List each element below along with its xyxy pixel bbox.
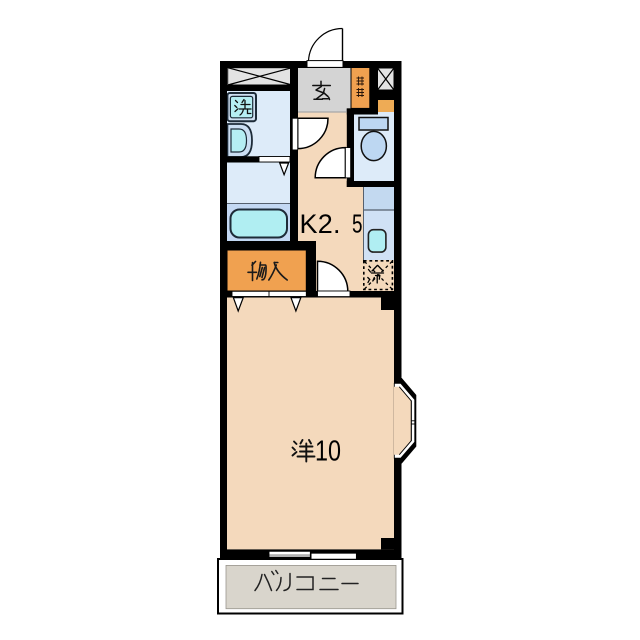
svg-text:5: 5 bbox=[352, 209, 363, 239]
svg-text:K2.: K2. bbox=[300, 209, 341, 239]
svg-text:10: 10 bbox=[315, 436, 341, 468]
